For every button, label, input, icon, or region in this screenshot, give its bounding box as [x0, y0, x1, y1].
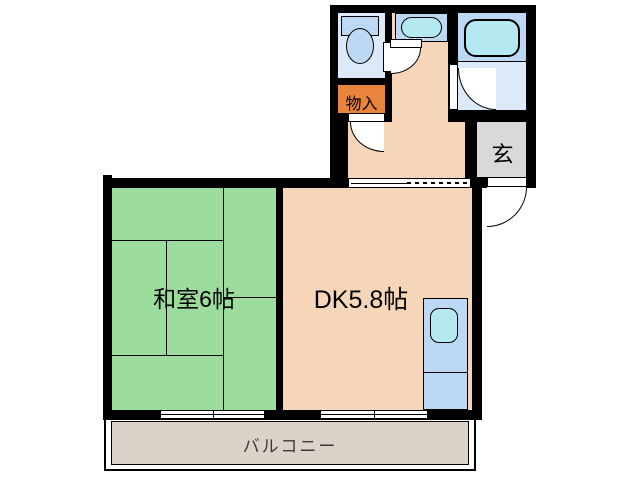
toilet-bowl-icon	[346, 28, 374, 64]
kitchen-counter-divider	[424, 372, 467, 373]
kitchen-sink-icon	[430, 308, 458, 343]
sliding-door	[347, 178, 470, 188]
bath-door	[449, 64, 458, 110]
window-sash-tick	[213, 411, 214, 418]
label-storage: 物入	[338, 90, 385, 114]
bathtub-icon	[464, 19, 520, 57]
wall	[330, 5, 536, 13]
entrance-door	[487, 177, 527, 187]
wall	[338, 113, 348, 122]
window-sash-tick	[374, 411, 375, 418]
window-washitsu	[160, 410, 265, 419]
washbasin-bowl-icon	[401, 17, 442, 38]
wall	[465, 122, 477, 177]
floor-plan: 和室6帖 DK5.8帖 玄 物入 バルコニー	[0, 0, 638, 480]
entrance-door-swing	[487, 187, 527, 227]
label-genkan: 玄	[477, 137, 528, 169]
wall	[472, 188, 482, 420]
wall	[338, 122, 348, 178]
wall	[458, 110, 536, 122]
sliding-door-dashed-track	[407, 182, 469, 184]
storage-door	[348, 113, 385, 122]
label-dk: DK5.8帖	[300, 280, 422, 316]
wall	[103, 175, 112, 420]
sliding-door-track	[351, 183, 407, 184]
tatami-line	[112, 355, 224, 356]
window-dk	[320, 410, 428, 419]
wall	[103, 178, 283, 188]
tatami-line	[112, 240, 224, 241]
label-washitsu: 和室6帖	[112, 280, 276, 314]
label-balcony: バルコニー	[111, 432, 469, 457]
wall	[276, 183, 283, 415]
wall	[527, 177, 536, 188]
wall	[276, 178, 347, 188]
wall	[330, 5, 338, 188]
wall	[338, 78, 385, 85]
washroom-door	[390, 39, 422, 48]
